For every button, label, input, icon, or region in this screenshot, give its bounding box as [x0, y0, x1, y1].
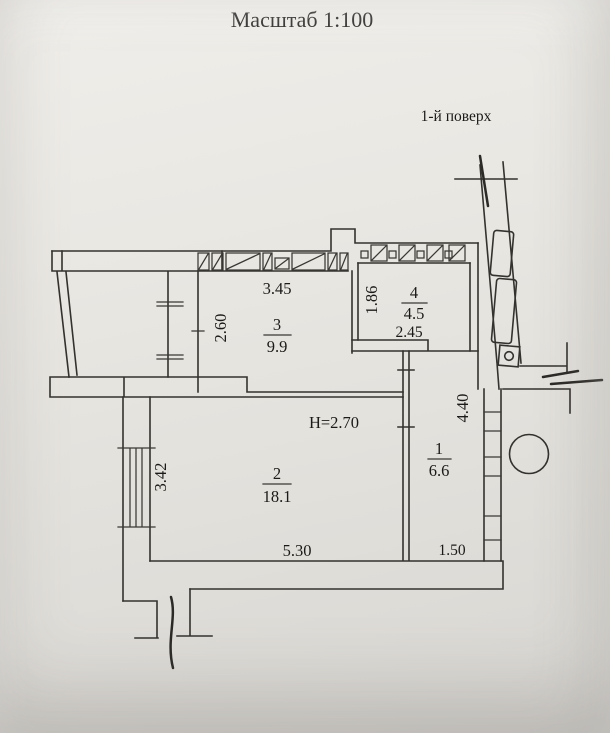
- room-2-area: 18.1: [263, 487, 292, 506]
- dim-room3-depth: 2.60: [211, 314, 230, 343]
- dim-room2-width: 5.30: [283, 541, 312, 560]
- corridor-doors: [490, 230, 520, 367]
- room-1-area: 6.6: [429, 461, 450, 480]
- dim-left-wall: 3.42: [151, 463, 170, 492]
- dim-right-wall: 4.40: [453, 394, 472, 423]
- scanned-floor-plan: Масштаб 1:100 1-й поверх 3.45 2.60 3 9.9…: [0, 0, 610, 733]
- room-4-number: 4: [410, 283, 418, 302]
- room-3-area: 9.9: [267, 337, 288, 356]
- column-circle: [510, 435, 549, 474]
- dim-room4-width: 2.45: [395, 324, 422, 341]
- window-hatch-band-left: [198, 253, 348, 270]
- plan-title: Масштаб 1:100: [231, 7, 373, 32]
- floor-plan-svg: Масштаб 1:100 1-й поверх 3.45 2.60 3 9.9…: [0, 0, 610, 733]
- corridor-shaft: [455, 162, 521, 389]
- door-jambs: [157, 302, 204, 359]
- dim-room1-width: 1.50: [438, 542, 465, 559]
- dim-ceiling-height: H=2.70: [309, 413, 359, 432]
- room-4-area: 4.5: [404, 304, 425, 323]
- wall-break-symbol-bottom: [171, 597, 173, 668]
- right-wall-hatch: [484, 412, 501, 540]
- balcony-window: [57, 272, 77, 377]
- room-2-number: 2: [273, 464, 281, 483]
- door-lock-circle: [504, 351, 513, 360]
- wall-break-symbol-right: [543, 371, 602, 384]
- dim-room3-width: 3.45: [263, 279, 292, 298]
- room-1-number: 1: [435, 439, 443, 458]
- door-lock-plate: [498, 345, 520, 367]
- room-3-number: 3: [273, 315, 281, 334]
- bottom-entrance-stub: [123, 589, 212, 638]
- dim-room4-depth: 1.86: [362, 286, 381, 315]
- floor-label: 1-й поверх: [421, 108, 492, 125]
- window-hatch-band-right: [361, 245, 465, 261]
